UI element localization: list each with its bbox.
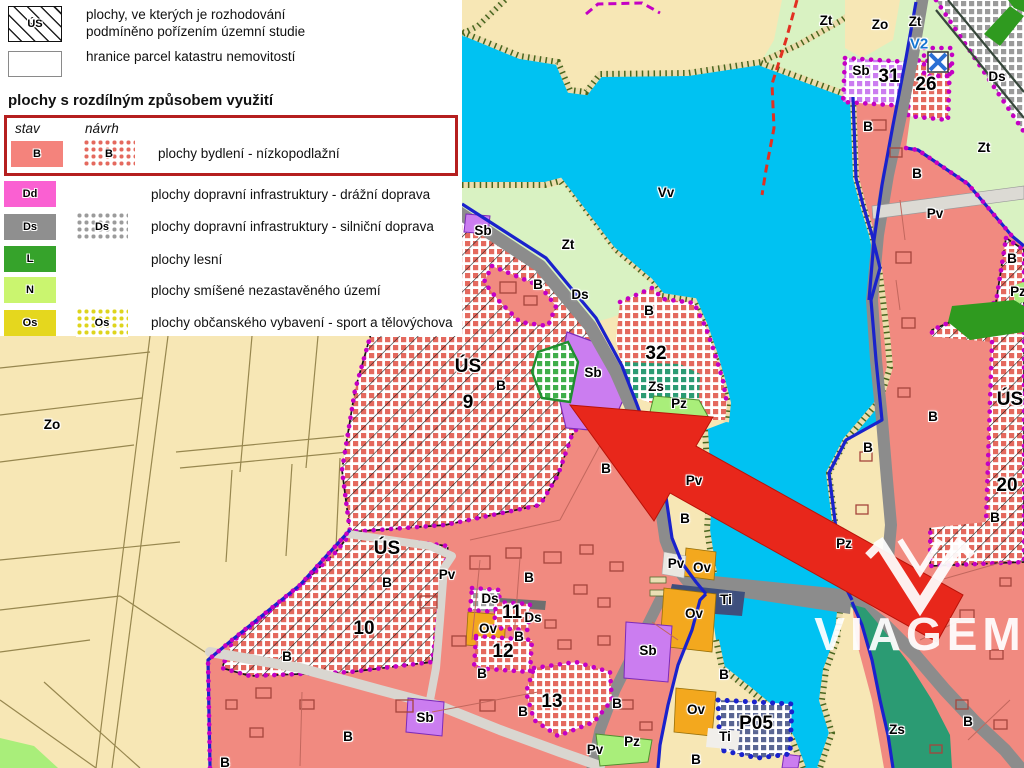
parcel-swatch — [8, 51, 62, 77]
zoning-map-screenshot[interactable]: VIAGEM ZtZoZtV2Sb3126DsZtBBPvBPzVvZtSbBD… — [0, 0, 1024, 768]
legend-item: ÚSplochy, ve kterých je rozhodování podm… — [8, 6, 462, 42]
legend-row-label: plochy lesní — [151, 252, 222, 267]
column-navrh: návrh — [85, 121, 119, 136]
stav-swatch-dd: Dd — [4, 181, 56, 207]
stav-swatch-ds: Ds — [4, 214, 56, 240]
swatch-code: B — [11, 141, 63, 167]
legend-row-label: plochy občanského vybavení - sport a těl… — [151, 315, 453, 330]
arrow-target-parcel — [532, 342, 578, 402]
swatch-code: Os — [76, 308, 128, 337]
legend-row-label: plochy dopravní infrastruktury - drážní … — [151, 187, 430, 202]
legend-row-dd: Ddplochy dopravní infrastruktury - drážn… — [4, 181, 462, 207]
legend-row-label: plochy dopravní infrastruktury - silničn… — [151, 219, 434, 234]
stav-swatch-b: B — [11, 141, 63, 167]
legend-columns: stavnávrh — [15, 121, 455, 136]
legend-row-label: plochy smíšené nezastavěného území — [151, 283, 381, 298]
legend-row-ds: DsDsplochy dopravní infrastruktury - sil… — [4, 212, 462, 241]
swatch-code: L — [4, 246, 56, 272]
legend-top-items: ÚSplochy, ve kterých je rozhodování podm… — [0, 6, 462, 77]
stav-swatch-os: Os — [4, 310, 56, 336]
v2-crossing-marker — [924, 48, 952, 76]
legend-row-os: OsOsplochy občanského vybavení - sport a… — [4, 308, 462, 337]
highlight-box: stavnávrhBBplochy bydlení - nízkopodlažn… — [4, 115, 458, 176]
stav-swatch-n: N — [4, 277, 56, 303]
legend-row-l: Lplochy lesní — [4, 246, 462, 272]
legend-panel: ÚSplochy, ve kterých je rozhodování podm… — [0, 0, 462, 336]
swatch-code: Ds — [4, 214, 56, 240]
navrh-swatch-b: B — [83, 139, 135, 168]
swatch-code: Os — [4, 310, 56, 336]
legend-row-label: plochy bydlení - nízkopodlažní — [158, 146, 340, 161]
legend-item-label: hranice parcel katastru nemovitostí — [86, 48, 295, 66]
navrh-swatch-os: Os — [76, 308, 128, 337]
swatch-code: N — [4, 277, 56, 303]
swatch-code: Ds — [76, 212, 128, 241]
stav-swatch-l: L — [4, 246, 56, 272]
legend-item: hranice parcel katastru nemovitostí — [8, 48, 462, 77]
us-hatch-swatch: ÚS — [8, 6, 62, 42]
swatch-code: B — [83, 139, 135, 168]
legend-row-n: Nplochy smíšené nezastavěného území — [4, 277, 462, 303]
legend-item-label: plochy, ve kterých je rozhodování podmín… — [86, 6, 305, 40]
column-stav: stav — [15, 121, 85, 136]
navrh-swatch-ds: Ds — [76, 212, 128, 241]
swatch-code: Dd — [4, 181, 56, 207]
viagem-wordmark: VIAGEM — [814, 608, 1024, 660]
swatch-code: ÚS — [9, 7, 61, 41]
legend-section-title: plochy s rozdílným způsobem využití — [8, 92, 462, 109]
region-b-pocket-east — [926, 336, 992, 528]
legend-rows: stavnávrhBBplochy bydlení - nízkopodlažn… — [0, 115, 462, 337]
legend-row-b: BBplochy bydlení - nízkopodlažní — [11, 139, 455, 168]
